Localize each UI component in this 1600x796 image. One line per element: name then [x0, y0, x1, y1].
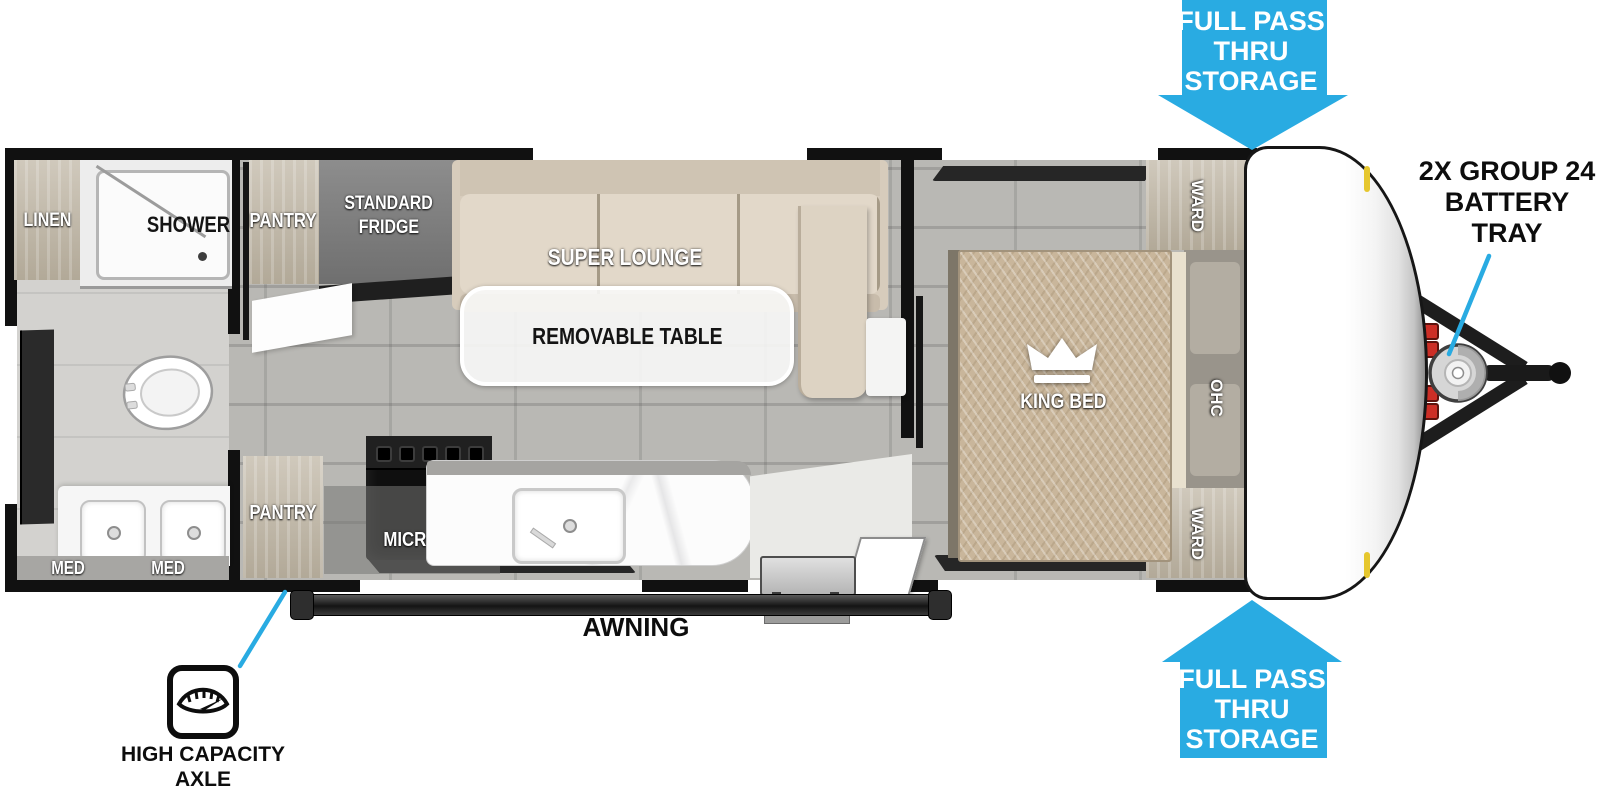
shower-drain	[198, 252, 207, 261]
pantry-top-label: PANTRY	[245, 206, 321, 236]
linen-label-text: LINEN	[23, 210, 71, 232]
bedroom-sliding-door	[916, 296, 923, 448]
rv-floorplan: LINEN SHOWER MED MED PANTRY STAND	[0, 0, 1600, 796]
kitchen-sink	[512, 488, 626, 564]
king-bed-label: KING BED	[980, 388, 1146, 416]
axle-line2: AXLE	[118, 767, 288, 792]
super-lounge-label: SUPER LOUNGE	[490, 240, 760, 274]
ward-bottom-text: WARD	[1187, 508, 1207, 560]
awning-endcap-left	[290, 590, 314, 620]
fridge-label: STANDARD FRIDGE	[319, 188, 459, 244]
scale-icon	[166, 664, 240, 740]
wardrobe-top-label: WARD	[1180, 166, 1214, 246]
lounge-chaise	[798, 206, 867, 398]
window-shade-bedroom-top	[932, 166, 1156, 181]
storage-bottom-line1: FULL PASS	[1156, 664, 1348, 694]
vanity-sink-right	[160, 500, 226, 564]
med-cabinet-right-label: MED	[138, 556, 198, 580]
battery-line3: TRAY	[1414, 218, 1600, 249]
kitchen-faucet	[530, 528, 556, 549]
pantry-bottom-label: PANTRY	[243, 498, 323, 528]
stove-knob-2	[399, 446, 415, 462]
axle-label: HIGH CAPACITY AXLE	[118, 742, 288, 792]
med-right-text: MED	[151, 558, 185, 579]
awning-text: AWNING	[583, 612, 690, 643]
window-top-bedroom	[942, 148, 1158, 160]
toilet-icon	[118, 350, 214, 436]
marker-light-bottom	[1364, 552, 1370, 578]
vanity-sink-left	[80, 500, 146, 564]
rear-wall-tv	[20, 330, 54, 525]
lounge-end-table	[866, 318, 906, 396]
fridge-text-1: STANDARD	[345, 192, 433, 216]
med-left-text: MED	[51, 558, 85, 579]
ohc-text: OHC	[1206, 379, 1226, 417]
pantry-bottom-text: PANTRY	[249, 502, 316, 525]
ward-top-text: WARD	[1187, 180, 1207, 232]
awning-endcap-right	[928, 590, 952, 620]
storage-bottom-line3: STORAGE	[1156, 724, 1348, 754]
pantry-top-text: PANTRY	[249, 210, 316, 233]
bedroom-wall	[901, 160, 914, 438]
stove-knob-1	[376, 446, 392, 462]
med-cabinet-left-label: MED	[38, 556, 98, 580]
linen-label: LINEN	[14, 206, 80, 236]
window-rear	[5, 326, 17, 504]
awning-label: AWNING	[556, 612, 716, 642]
removable-table-text: REMOVABLE TABLE	[532, 323, 722, 350]
axle-line1: HIGH CAPACITY	[118, 742, 288, 767]
battery-line2: BATTERY	[1414, 187, 1600, 218]
storage-top-line2: THRU	[1148, 36, 1354, 66]
window-bottom-kitchen	[360, 580, 642, 592]
battery-tray-label: 2X GROUP 24 BATTERY TRAY	[1414, 156, 1600, 249]
removable-table: REMOVABLE TABLE	[460, 286, 794, 386]
storage-top-line1: FULL PASS	[1148, 6, 1354, 36]
window-top-lounge	[533, 148, 807, 160]
shower-label: SHOWER	[128, 208, 248, 242]
storage-arrow-top-label: FULL PASS THRU STORAGE	[1148, 6, 1354, 96]
king-bed-text: KING BED	[1020, 390, 1106, 414]
fridge-text-2: FRIDGE	[359, 216, 419, 240]
window-bottom-bedroom	[938, 580, 1156, 592]
counter-backsplash	[427, 461, 751, 475]
front-cap	[1244, 146, 1428, 600]
battery-line1: 2X GROUP 24	[1414, 156, 1600, 187]
wardrobe-bottom-label: WARD	[1180, 494, 1214, 574]
storage-arrow-bottom-label: FULL PASS THRU STORAGE	[1156, 664, 1348, 754]
shower-label-text: SHOWER	[146, 212, 229, 238]
super-lounge-text: SUPER LOUNGE	[548, 244, 703, 271]
ohc-label: OHC	[1196, 356, 1236, 440]
lounge-headrest	[460, 160, 880, 196]
hitch-assembly	[1408, 286, 1600, 460]
headboard-cushion-top	[1190, 262, 1240, 354]
storage-top-line3: STORAGE	[1148, 66, 1354, 96]
marker-light-top	[1364, 166, 1370, 192]
entry-step	[760, 556, 856, 596]
storage-bottom-line2: THRU	[1156, 694, 1348, 724]
crown-icon	[1024, 336, 1100, 386]
